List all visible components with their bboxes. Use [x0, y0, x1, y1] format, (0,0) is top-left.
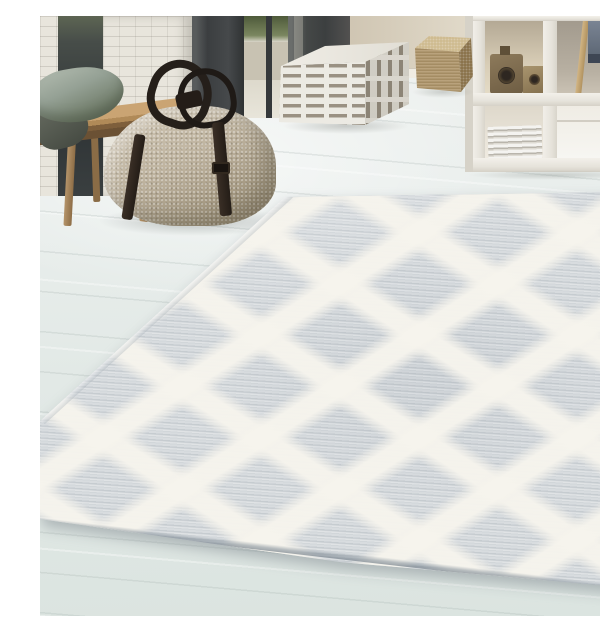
rug-bottom-edge-binding [40, 517, 600, 598]
rug-left-edge [40, 192, 293, 424]
diamond-trellis-rug [40, 16, 600, 616]
rug-shadow-wrap [40, 16, 600, 616]
room-scene-photo: Bright Scandinavian-style room with a la… [40, 16, 600, 616]
rug-top-edge [283, 187, 600, 197]
